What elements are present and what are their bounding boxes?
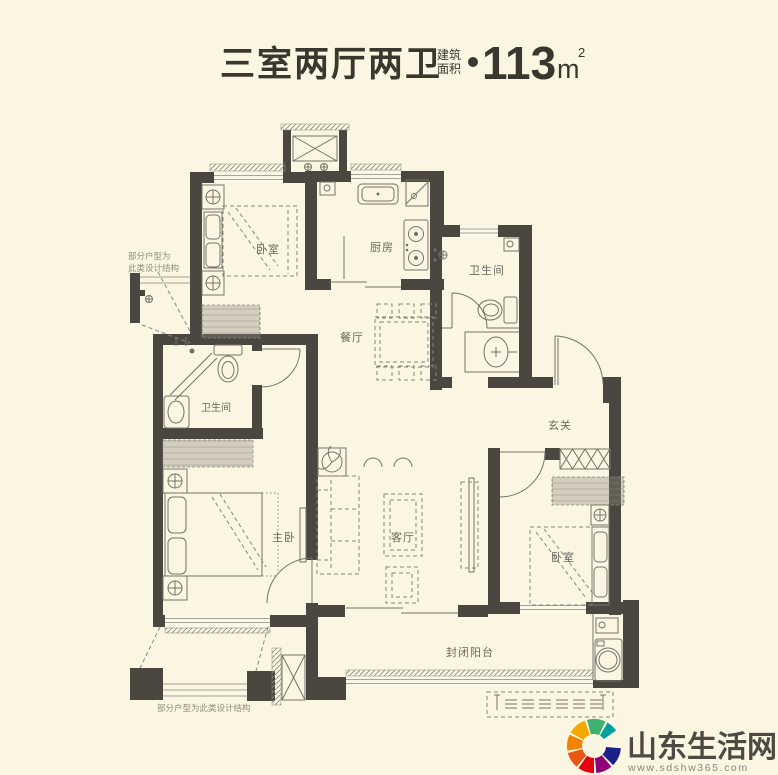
area-value: 113 <box>482 37 556 89</box>
room-label-dining: 餐厅 <box>340 330 364 344</box>
site-logo: 山东生活网 www.sdshw365.com <box>567 719 777 774</box>
room-label-balcony: 封闭阳台 <box>446 645 494 659</box>
living-room-furniture <box>317 446 478 603</box>
kitchen-fixtures <box>320 180 428 270</box>
room-label-bedroom-right: 卧室 <box>551 550 575 564</box>
flue-shaft-bottom <box>282 655 305 700</box>
room-label-bedroom-top-left: 卧室 <box>256 242 280 256</box>
plan-header: 三室两厅两卫 建筑 面积 113 m 2 <box>220 37 585 89</box>
bathroom-left-fixtures <box>164 337 242 428</box>
plan-title: 三室两厅两卫 <box>220 44 442 84</box>
bedroom-top-left-furniture <box>202 185 297 295</box>
room-label-kitchen: 厨房 <box>370 241 394 254</box>
area-unit-exponent: 2 <box>578 45 585 60</box>
logo-color-wheel-icon <box>567 719 621 773</box>
balcony-fixtures <box>593 614 622 681</box>
flue-shaft-top <box>293 136 337 171</box>
room-label-foyer: 玄关 <box>548 418 572 432</box>
bullet-icon <box>468 57 478 67</box>
wardrobes <box>163 305 624 505</box>
dining-furniture <box>375 304 436 380</box>
bathroom-top-right-fixtures <box>434 238 520 372</box>
area-label-top: 建筑 <box>437 47 461 62</box>
area-unit: m <box>557 54 580 84</box>
floorplan-page: 三室两厅两卫 建筑 面积 113 m 2 <box>0 0 778 775</box>
site-url: www.sdshw365.com <box>627 762 749 774</box>
room-label-master-bedroom: 主卧 <box>272 531 296 544</box>
left-note-line1: 部分户型为 <box>128 251 171 261</box>
bottom-note: 部分户型为此类设计结构 <box>157 703 251 713</box>
floorplan-canvas: 三室两厅两卫 建筑 面积 113 m 2 <box>0 0 778 775</box>
room-label-living-room: 客厅 <box>391 530 415 544</box>
site-name: 山东生活网 <box>627 730 777 764</box>
area-label-bottom: 面积 <box>437 62 461 76</box>
foyer-shoe-cabinet <box>560 449 610 469</box>
ac-unit <box>487 692 613 717</box>
room-label-bathroom-left: 卫生间 <box>201 401 231 414</box>
left-note-line2: 此类设计结构 <box>128 263 179 273</box>
room-label-bathroom-top-right: 卫生间 <box>469 263 505 277</box>
